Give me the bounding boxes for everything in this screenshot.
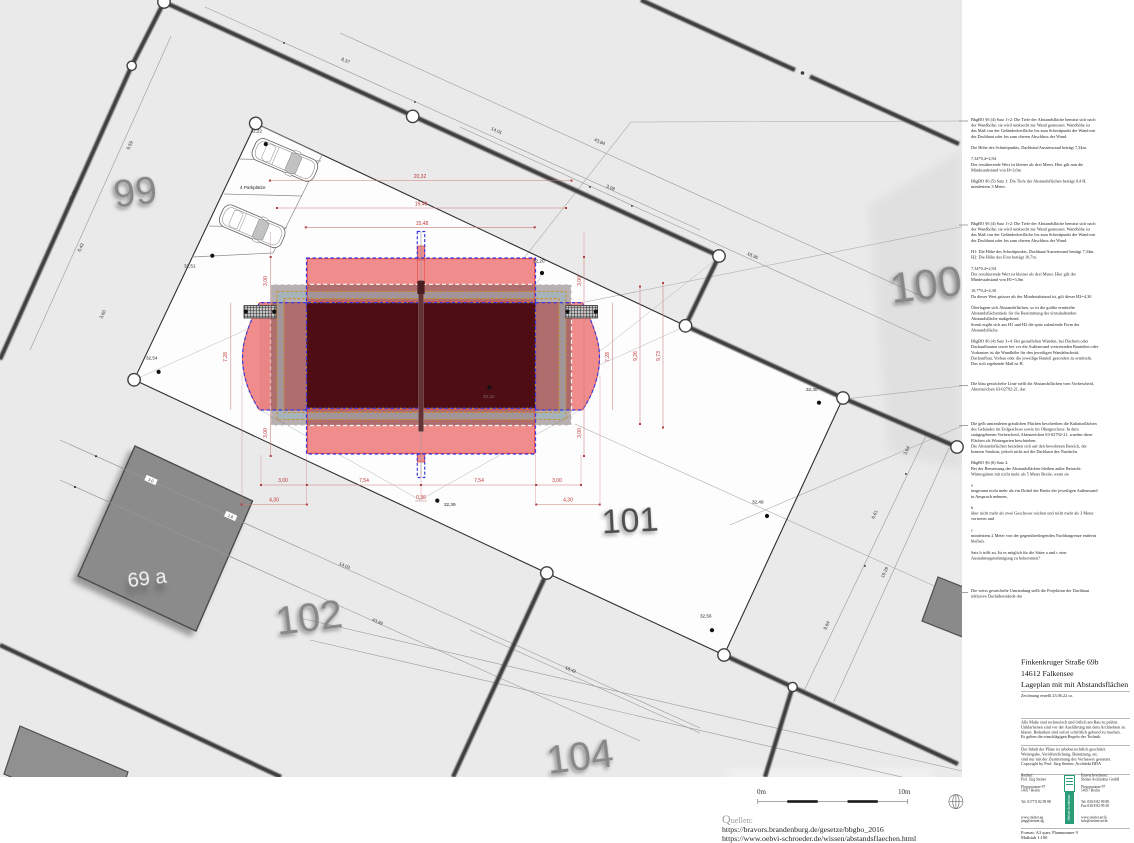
svg-text:15,48: 15,48 [416,221,429,227]
svg-text:0,36: 0,36 [416,495,426,501]
svg-text:101: 101 [601,501,660,542]
svg-text:10m: 10m [898,788,911,796]
svg-text:32,32: 32,32 [483,394,495,399]
svg-text:7,28: 7,28 [605,352,611,362]
svg-text:32,54: 32,54 [146,356,158,361]
svg-text:32,49: 32,49 [752,500,764,505]
svg-text:20,32: 20,32 [414,174,427,180]
svg-text:4 Parkplätze: 4 Parkplätze [240,185,266,190]
svg-text:3,00: 3,00 [278,478,288,484]
svg-text:104: 104 [544,731,616,783]
svg-text:7,28: 7,28 [223,352,229,362]
svg-text:102: 102 [273,592,345,644]
svg-text:4,30: 4,30 [269,498,279,504]
svg-text:32,22: 32,22 [251,129,263,134]
svg-text:9,73: 9,73 [656,351,662,361]
svg-text:32,56: 32,56 [700,614,712,619]
svg-text:32,51: 32,51 [184,264,196,269]
svg-text:3,00: 3,00 [263,276,269,286]
svg-text:3,00: 3,00 [577,428,583,438]
svg-text:99: 99 [111,168,159,216]
svg-text:7,54: 7,54 [359,478,369,484]
svg-text:3,00: 3,00 [577,276,583,286]
svg-text:19,48: 19,48 [415,202,428,208]
svg-text:3,00: 3,00 [552,478,562,484]
svg-text:32,20: 32,20 [533,259,545,264]
svg-text:7,54: 7,54 [474,478,484,484]
svg-text:0m: 0m [757,788,767,796]
svg-text:4,30: 4,30 [563,498,573,504]
svg-text:9,26: 9,26 [633,351,639,361]
svg-text:3,00: 3,00 [263,428,269,438]
svg-text:100: 100 [887,257,964,313]
svg-text:32,40: 32,40 [806,387,818,392]
svg-text:32,39: 32,39 [444,502,456,507]
